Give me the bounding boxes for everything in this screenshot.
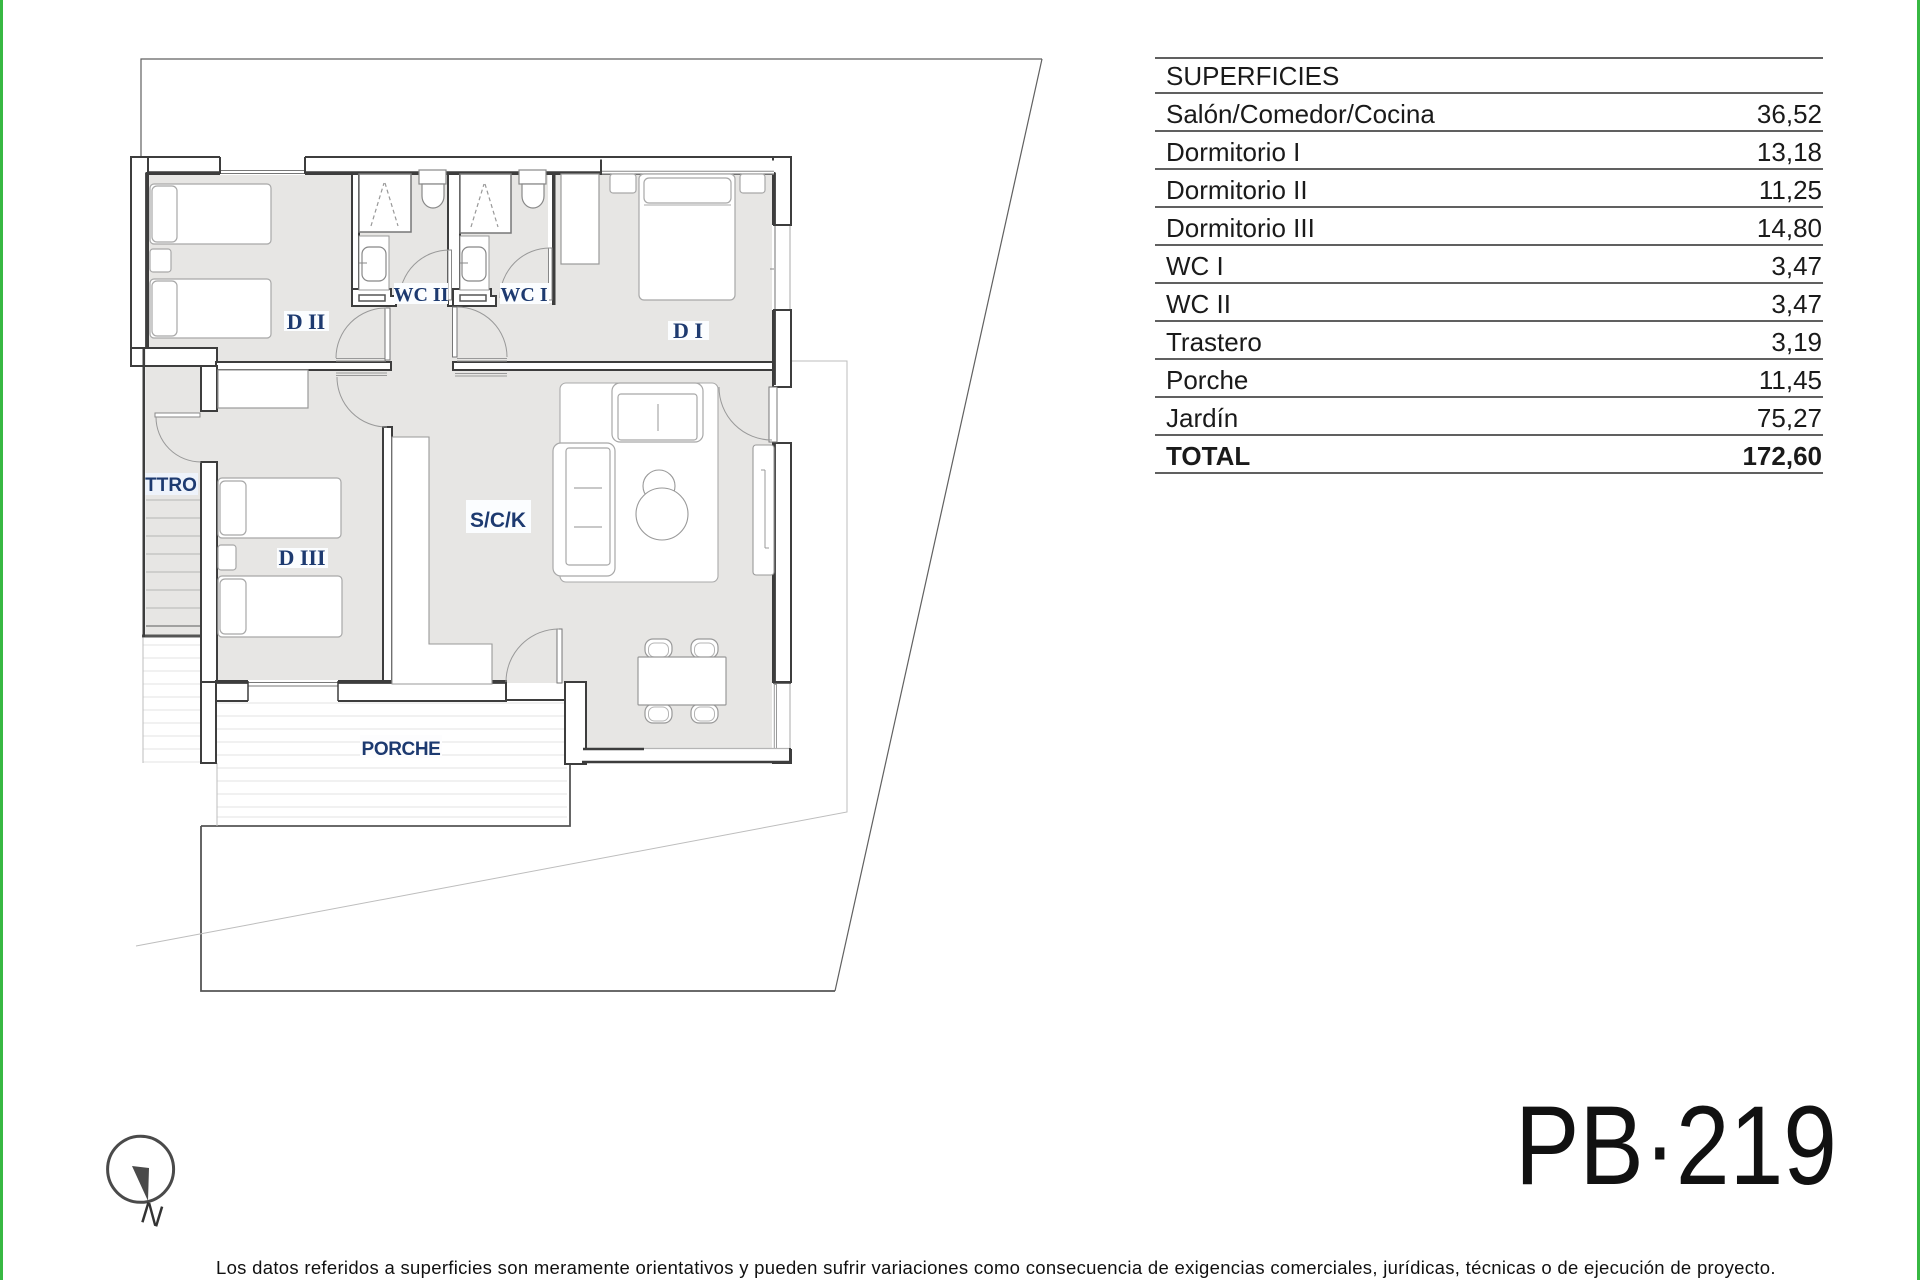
svg-text:Dormitorio III: Dormitorio III [1166,213,1315,243]
svg-text:Porche: Porche [1166,365,1248,395]
svg-text:SUPERFICIES: SUPERFICIES [1166,61,1339,91]
svg-text:3,19: 3,19 [1771,327,1822,357]
svg-text:PORCHE: PORCHE [362,739,441,760]
svg-text:PB·219: PB·219 [1515,1083,1837,1208]
svg-text:Los datos referidos a superfic: Los datos referidos a superficies son me… [216,1257,1776,1278]
svg-text:75,27: 75,27 [1757,403,1822,433]
svg-text:Dormitorio I: Dormitorio I [1166,137,1300,167]
svg-text:WC II: WC II [1166,289,1231,319]
svg-text:11,25: 11,25 [1759,175,1822,205]
svg-text:D III: D III [278,545,325,570]
svg-text:3,47: 3,47 [1771,251,1822,281]
svg-text:Jardín: Jardín [1166,403,1238,433]
svg-text:172,60: 172,60 [1742,441,1822,471]
svg-text:D II: D II [287,309,326,334]
svg-text:36,52: 36,52 [1757,99,1822,129]
svg-text:Salón/Comedor/Cocina: Salón/Comedor/Cocina [1166,99,1435,129]
svg-text:Trastero: Trastero [1166,327,1262,357]
svg-text:Dormitorio II: Dormitorio II [1166,175,1308,205]
svg-text:WC I: WC I [1166,251,1224,281]
svg-text:S/C/K: S/C/K [470,509,526,532]
svg-text:TOTAL: TOTAL [1166,441,1250,471]
svg-text:11,45: 11,45 [1759,365,1822,395]
svg-text:3,47: 3,47 [1771,289,1822,319]
svg-text:D I: D I [673,318,703,343]
svg-text:WC II: WC II [393,284,448,306]
svg-text:WC I: WC I [500,284,547,306]
svg-text:13,18: 13,18 [1757,137,1822,167]
svg-text:14,80: 14,80 [1757,213,1822,243]
svg-text:TTRO: TTRO [145,475,197,496]
